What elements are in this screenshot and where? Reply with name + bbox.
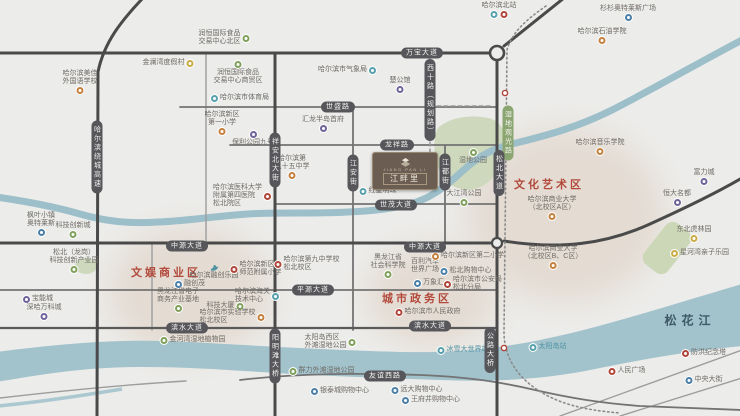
poi-label-line: 商务产业基地 (157, 296, 199, 304)
poi-label: 润恒国际食品交易中心商贸区 (214, 69, 263, 85)
red-poi-icon (444, 281, 451, 288)
map-poi: 哈尔滨第九中学校松北校区 (275, 256, 340, 272)
teal-poi-icon (491, 11, 498, 18)
blue-poi-icon (686, 377, 693, 384)
poi-label: 湿地公园 (459, 157, 487, 165)
blue-poi-icon (402, 397, 409, 404)
yellow-poi-icon (671, 250, 678, 257)
poi-label-line: 宝能城 (32, 295, 53, 303)
red-poi-icon (609, 368, 616, 375)
map-poi: 星河湾亲子乐园 (671, 249, 729, 257)
road-label: 万宝大道 (401, 48, 443, 59)
road-label: 世茂大道 (375, 200, 417, 211)
green-poi-icon (349, 339, 356, 346)
map-poi: 哈尔滨市气象局 (318, 66, 376, 74)
poi-label-line: 哈尔滨新区 (205, 111, 240, 119)
poi-label: 太阳岛西区外滩湿地公园 (305, 334, 347, 350)
map-poi: 深哈万科城 (27, 304, 62, 320)
map-poi: 群力外滩湿地公园 (290, 367, 355, 375)
poi-label: 金澜湾度假村 (143, 59, 185, 67)
poi-label: 哈尔滨商业大学（北校区A区） (528, 196, 577, 212)
map-poi: 哈尔滨商业大学（北校区A区） (528, 196, 577, 220)
poi-label: 科技创新城 (56, 222, 91, 230)
poi-label: 哈尔滨医科大学附属第四医院松北院区 (213, 184, 262, 208)
teal-poi-icon (360, 188, 367, 195)
road-label: 公路大桥 (485, 327, 496, 373)
road-label: 中源大道 (166, 241, 208, 252)
project-tagline: JIANG PAN LI (383, 168, 426, 172)
map-poi: 润恒国际食品交易中心北区 (199, 30, 250, 46)
yellow-poi-icon (691, 235, 698, 242)
poi-label-line: 防洪纪念塔 (691, 349, 726, 357)
green-poi-icon (71, 266, 78, 273)
teal-poi-icon (530, 344, 537, 351)
map-poi: 楚公馆 (390, 77, 411, 93)
poi-label-line: 社会科学院 (371, 262, 406, 270)
poi-label: 哈尔滨音乐学院 (576, 139, 625, 147)
map-poi: 王府井购物中心 (402, 396, 460, 404)
poi-label-line: 东北虎林园 (677, 226, 712, 234)
red-poi-icon (501, 11, 508, 18)
poi-icon-group (491, 11, 508, 18)
map-poi: 太阳岛西区外滩湿地公园 (305, 334, 356, 350)
road-label: 友谊西路 (364, 371, 406, 382)
metro-station-dot (502, 90, 507, 95)
district-label: 文化艺术区 (514, 176, 584, 192)
poi-label-line: 万象汇 (423, 279, 444, 287)
poi-label: 哈尔滨市体育局 (220, 94, 269, 102)
poi-label: 哈尔滨第九中学校松北校区 (284, 256, 340, 272)
poi-label-line: 哈尔滨商业大学 (528, 196, 577, 204)
poi-label-line: 黑龙江省 (374, 254, 402, 262)
poi-label-line: 深哈万科城 (27, 304, 62, 312)
purple-poi-icon (250, 131, 257, 138)
poi-label-line: 太阳岛西区 (305, 334, 347, 342)
poi-label-line: 黑龙江省电子 (157, 288, 199, 296)
poi-label-line: 松北（龙岗） (53, 249, 95, 257)
poi-label-line: 哈尔滨商业大学 (528, 245, 577, 253)
blue-poi-icon (392, 387, 399, 394)
map-poi: 哈尔滨市体育局 (211, 94, 269, 102)
location-map[interactable]: 万宝大道世盛路龙祥路世茂大道中源大道中源大道平源大道滨水大道滨水大道友谊西路哈尔… (0, 0, 740, 416)
poi-label-line: 金河湾湿地植物园 (170, 336, 226, 344)
map-poi: 银泰城购物中心 (311, 387, 369, 395)
project-logo-icon (398, 158, 413, 167)
poi-label: 杉杉奥特莱斯广场 (600, 5, 656, 13)
map-poi: 科技创新城 (56, 222, 91, 238)
map-poi: 宝能城 (23, 295, 53, 303)
yellow-poi-icon (187, 60, 194, 67)
blue-poi-icon (38, 229, 45, 236)
poi-label-line: 保利公园九号 (232, 139, 274, 147)
poi-label: 哈尔滨海关技术中心 (235, 288, 270, 304)
poi-label-line: 外国语学校 (63, 78, 98, 86)
poi-label-line: 冰雪大世界站 (447, 346, 489, 354)
orange-poi-icon (258, 314, 265, 321)
poi-label: 松北购物中心 (450, 267, 492, 275)
poi-label-line: 哈尔滨医科大学 (213, 184, 262, 192)
orange-poi-icon (549, 262, 556, 269)
road-label: 平源大道 (292, 285, 334, 296)
poi-label: 冰雪大世界站 (447, 346, 489, 354)
orange-poi-icon (219, 128, 226, 135)
poi-label: 人民广场 (618, 367, 646, 375)
road-label: 龙祥路 (380, 140, 414, 151)
poi-label: 哈尔滨商业大学（北校区B、C区） (524, 245, 583, 261)
metro-station-dot (501, 345, 506, 350)
poi-label: 哈尔滨新区第二小学 (441, 252, 504, 260)
poi-label-line: （北校区A区） (529, 204, 576, 212)
project-name: 江畔里 (383, 173, 427, 185)
road-label: 世盛路 (321, 102, 355, 113)
map-poi: 黑龙江省社会科学院 (371, 254, 406, 278)
map-poi: 哈尔滨市实验学校松北校区 (200, 309, 265, 325)
teal-poi-icon (211, 95, 218, 102)
roundabout (490, 46, 504, 60)
poi-label: 中央大街 (695, 376, 723, 384)
map-poi: 哈尔滨新区第二小学 (432, 252, 504, 260)
road-label: 滨水大道 (409, 321, 451, 332)
map-poi: 金河湾湿地植物园 (161, 336, 226, 344)
green-poi-icon (470, 149, 477, 156)
map-poi: 百利汽车世界广场 (411, 258, 439, 274)
map-poi: 黑龙江省电子商务产业基地 (157, 288, 199, 312)
blue-poi-icon (625, 14, 632, 21)
poi-label-line: 技术中心 (235, 296, 270, 304)
orange-poi-icon (599, 37, 606, 44)
swan-icon (209, 264, 219, 271)
poi-label-line: 王府井购物中心 (411, 396, 460, 404)
purple-poi-icon (397, 86, 404, 93)
poi-label: 星河湾亲子乐园 (680, 249, 729, 257)
poi-label-line: 科技创新产业园 (50, 257, 99, 265)
map-poi: 哈尔滨音乐学院 (576, 139, 625, 155)
map-poi: 汇龙半岛首府 (302, 116, 344, 132)
poi-label-line: 富力城 (694, 169, 715, 177)
poi-label: 哈尔滨美佳外国语学校 (63, 70, 98, 86)
red-poi-icon (231, 266, 238, 273)
poi-label-line: 融创茂 (184, 280, 205, 288)
poi-label: 哈尔滨市公安局松北分局 (453, 276, 502, 292)
songhua-river-label: 松花江 (664, 312, 715, 329)
poi-label-line: 哈尔滨市实验学校 (200, 309, 256, 317)
red-poi-icon (396, 309, 403, 316)
road-label: 中源大道 (404, 242, 446, 253)
poi-label-line: 哈尔滨海关 (235, 288, 270, 296)
poi-label: 楚公馆 (390, 77, 411, 85)
map-poi: 哈尔滨石油学院 (578, 28, 627, 44)
poi-label-line: 世界广场 (411, 266, 439, 274)
poi-label: 黑龙江省电子商务产业基地 (157, 288, 199, 304)
map-poi: 富力城 (694, 169, 715, 185)
poi-label-line: 中央大街 (695, 376, 723, 384)
poi-label: 远大购物中心 (401, 386, 443, 394)
map-poi: 人民广场 (609, 367, 646, 375)
poi-label-line: 哈尔滨市气象局 (318, 66, 367, 74)
map-poi: 中央大街 (686, 376, 723, 384)
poi-label-line: 外滩湿地公园 (305, 342, 347, 350)
roundabout (492, 238, 502, 248)
poi-label: 松北（龙岗）科技创新产业园 (50, 249, 99, 265)
road-label: 阳明滩大桥 (270, 329, 281, 384)
poi-label-line: 星河湾亲子乐园 (680, 249, 729, 257)
poi-label: 枫叶小镇奥特莱斯 (27, 212, 55, 228)
poi-label: 太阳岛站 (539, 343, 567, 351)
poi-label: 深哈万科城 (27, 304, 62, 312)
poi-label: 万象汇 (423, 279, 444, 287)
road-label: 江都街 (440, 154, 451, 191)
orange-poi-icon (432, 253, 439, 260)
road-label: 西十路（规划路） (425, 59, 436, 141)
map-poi: 湿地公园 (459, 149, 487, 165)
map-poi: 枫叶小镇奥特莱斯 (27, 212, 55, 236)
poi-label-line: 交易中心北区 (199, 38, 241, 46)
road-label: 湿地观光路 (503, 106, 514, 161)
poi-label-line: 润恒国际食品 (199, 30, 241, 38)
poi-label: 融创茂 (184, 280, 205, 288)
poi-label: 群力外滩湿地公园 (299, 367, 355, 375)
poi-label: 东北虎林园 (677, 226, 712, 234)
map-poi: 哈尔滨北站 (482, 2, 517, 18)
poi-label-line: 科技创新城 (56, 222, 91, 230)
poi-label: 润恒国际食品交易中心北区 (199, 30, 241, 46)
green-poi-icon (290, 368, 297, 375)
teal-poi-icon (438, 347, 445, 354)
poi-label: 哈尔滨市气象局 (318, 66, 367, 74)
poi-label-line: 楚公馆 (390, 77, 411, 85)
poi-label-line: 远大购物中心 (401, 386, 443, 394)
poi-label: 哈尔滨市人民政府 (405, 308, 461, 316)
poi-label-line: 哈尔滨北站 (482, 2, 517, 10)
poi-label: 宝能城 (32, 295, 53, 303)
map-poi: 保利公园九号 (232, 131, 274, 147)
poi-label-line: 附属第四医院 (213, 192, 262, 200)
poi-label-line: 松北校区 (200, 317, 256, 325)
green-poi-icon (235, 61, 242, 68)
poi-label-line: 润恒国际食品 (217, 69, 259, 77)
poi-label-line: 湿地公园 (459, 157, 487, 165)
poi-label-line: 哈尔滨第 (278, 155, 306, 163)
poi-label-line: 哈尔滨美佳 (63, 70, 98, 78)
map-poi: 哈尔滨医科大学附属第四医院松北院区 (213, 184, 271, 208)
poi-label-line: 哈尔滨市体育局 (220, 94, 269, 102)
poi-label-line: 奥特莱斯 (27, 220, 55, 228)
blue-poi-icon (311, 388, 318, 395)
orange-poi-icon (597, 148, 604, 155)
map-poi: 松北（龙岗）科技创新产业园 (50, 249, 99, 273)
poi-label: 哈尔滨北站 (482, 2, 517, 10)
map-poi: 万象汇 (414, 279, 444, 287)
purple-poi-icon (674, 199, 681, 206)
poi-label: 保利公园九号 (232, 139, 274, 147)
orange-poi-icon (549, 213, 556, 220)
road-label: 滨水大道 (166, 323, 208, 334)
poi-label-line: 恒大名都 (663, 190, 691, 198)
green-poi-icon (461, 199, 468, 206)
blue-poi-icon (175, 281, 182, 288)
poi-label-line: 人民广场 (618, 367, 646, 375)
project-marker[interactable]: JIANG PAN LI 江畔里 (372, 152, 438, 190)
poi-label-line: 松北分局 (453, 284, 502, 292)
poi-label: 哈尔滨新区第一小学 (205, 111, 240, 127)
poi-label-line: 松北院区 (213, 200, 262, 208)
map-poi: 哈尔滨市公安局松北分局 (444, 276, 502, 292)
purple-poi-icon (320, 125, 327, 132)
poi-label-line: 金澜湾度假村 (143, 59, 185, 67)
map-poi: 杉杉奥特莱斯广场 (600, 5, 656, 21)
poi-label: 哈尔滨市实验学校松北校区 (200, 309, 256, 325)
poi-label-line: 哈尔滨市人民政府 (405, 308, 461, 316)
map-poi: 哈尔滨商业大学（北校区B、C区） (524, 245, 583, 269)
map-poi: 冰雪大世界站 (438, 346, 489, 354)
poi-label: 大江湾公园 (447, 190, 482, 198)
orange-poi-icon (77, 87, 84, 94)
poi-label-line: 哈尔滨新区第二小学 (441, 252, 504, 260)
poi-label-line: 哈尔滨第九中学校 (284, 256, 340, 264)
poi-label-line: 银泰城购物中心 (320, 387, 369, 395)
map-poi: 润恒国际食品交易中心商贸区 (214, 61, 263, 85)
poi-label: 黑龙江省社会科学院 (371, 254, 406, 270)
map-poi: 防洪纪念塔 (682, 349, 726, 357)
road-label: 哈尔滨绕城高速 (92, 121, 103, 194)
red-poi-icon (275, 261, 282, 268)
map-canvas (0, 0, 740, 416)
poi-label: 防洪纪念塔 (691, 349, 726, 357)
map-poi: 大江湾公园 (447, 190, 482, 206)
poi-label: 富力城 (694, 169, 715, 177)
poi-label-line: 第一小学 (208, 119, 236, 127)
district-label: 城市政务区 (382, 290, 452, 306)
road-label: 松北大道 (494, 150, 505, 196)
blue-poi-icon (441, 268, 448, 275)
poi-label-line: 大江湾公园 (447, 190, 482, 198)
purple-poi-icon (23, 296, 30, 303)
green-poi-icon (243, 35, 250, 42)
road-label: 江安街 (348, 155, 359, 192)
map-poi: 哈尔滨海关技术中心 (235, 288, 279, 304)
purple-poi-icon (41, 313, 48, 320)
teal-poi-icon (369, 67, 376, 74)
poi-label-line: 太阳岛站 (539, 343, 567, 351)
poi-label-line: 汇龙半岛首府 (302, 116, 344, 124)
poi-label: 汇龙半岛首府 (302, 116, 344, 124)
map-poi: 融创茂 (175, 280, 205, 288)
map-poi: 金澜湾度假村 (143, 59, 194, 67)
map-poi: 太阳岛站 (530, 343, 567, 351)
red-poi-icon (682, 350, 689, 357)
blue-poi-icon (414, 280, 421, 287)
green-poi-icon (70, 231, 77, 238)
poi-label: 金河湾湿地植物园 (170, 336, 226, 344)
poi-label: 哈尔滨石油学院 (578, 28, 627, 36)
map-poi: 松北购物中心 (441, 267, 492, 275)
poi-label: 恒大名都 (663, 190, 691, 198)
map-poi: 远大购物中心 (392, 386, 443, 394)
poi-label-line: 杉杉奥特莱斯广场 (600, 5, 656, 13)
poi-label: 银泰城购物中心 (320, 387, 369, 395)
map-poi: 哈尔滨市人民政府 (396, 308, 461, 316)
red-poi-icon (264, 193, 271, 200)
poi-label-line: 松北校区 (284, 264, 340, 272)
map-poi: 哈尔滨美佳外国语学校 (63, 70, 98, 94)
poi-label-line: 哈尔滨音乐学院 (576, 139, 625, 147)
poi-label-line: 哈尔滨市公安局 (453, 276, 502, 284)
poi-label-line: 群力外滩湿地公园 (299, 367, 355, 375)
road-label: 祥安北大街 (270, 133, 281, 188)
poi-label-line: 枫叶小镇 (27, 212, 55, 220)
map-poi: 恒大名都 (663, 190, 691, 206)
poi-label: 王府井购物中心 (411, 396, 460, 404)
poi-label-line: 交易中心商贸区 (214, 77, 263, 85)
purple-poi-icon (701, 178, 708, 185)
poi-label: 百利汽车世界广场 (411, 258, 439, 274)
green-poi-icon (161, 337, 168, 344)
orange-poi-icon (289, 172, 296, 179)
teal-poi-icon (272, 293, 279, 300)
poi-label-line: 哈尔滨石油学院 (578, 28, 627, 36)
map-poi: 东北虎林园 (677, 226, 712, 242)
green-poi-icon (175, 305, 182, 312)
green-poi-icon (385, 271, 392, 278)
poi-label-line: 松北购物中心 (450, 267, 492, 275)
poi-label-line: （北校区B、C区） (524, 253, 583, 261)
